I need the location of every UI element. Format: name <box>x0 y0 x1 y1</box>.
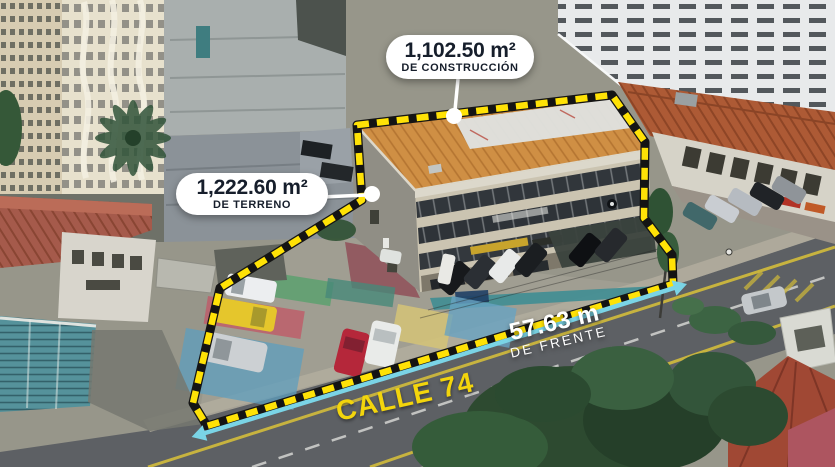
land-area-value: 1,222.60 m² <box>196 177 307 198</box>
land-pointer-dot <box>364 186 380 202</box>
construction-pointer-dot <box>446 108 462 124</box>
construction-area-caption: DE CONSTRUCCIÓN <box>401 63 518 74</box>
land-area-caption: DE TERRENO <box>213 200 291 211</box>
construction-area-value: 1,102.50 m² <box>404 40 515 61</box>
property-aerial-screenshot: 1,102.50 m² DE CONSTRUCCIÓN 1,222.60 m² … <box>0 0 835 467</box>
land-area-label: 1,222.60 m² DE TERRENO <box>176 173 328 215</box>
construction-area-label: 1,102.50 m² DE CONSTRUCCIÓN <box>386 35 534 79</box>
pedestrian <box>726 249 732 255</box>
